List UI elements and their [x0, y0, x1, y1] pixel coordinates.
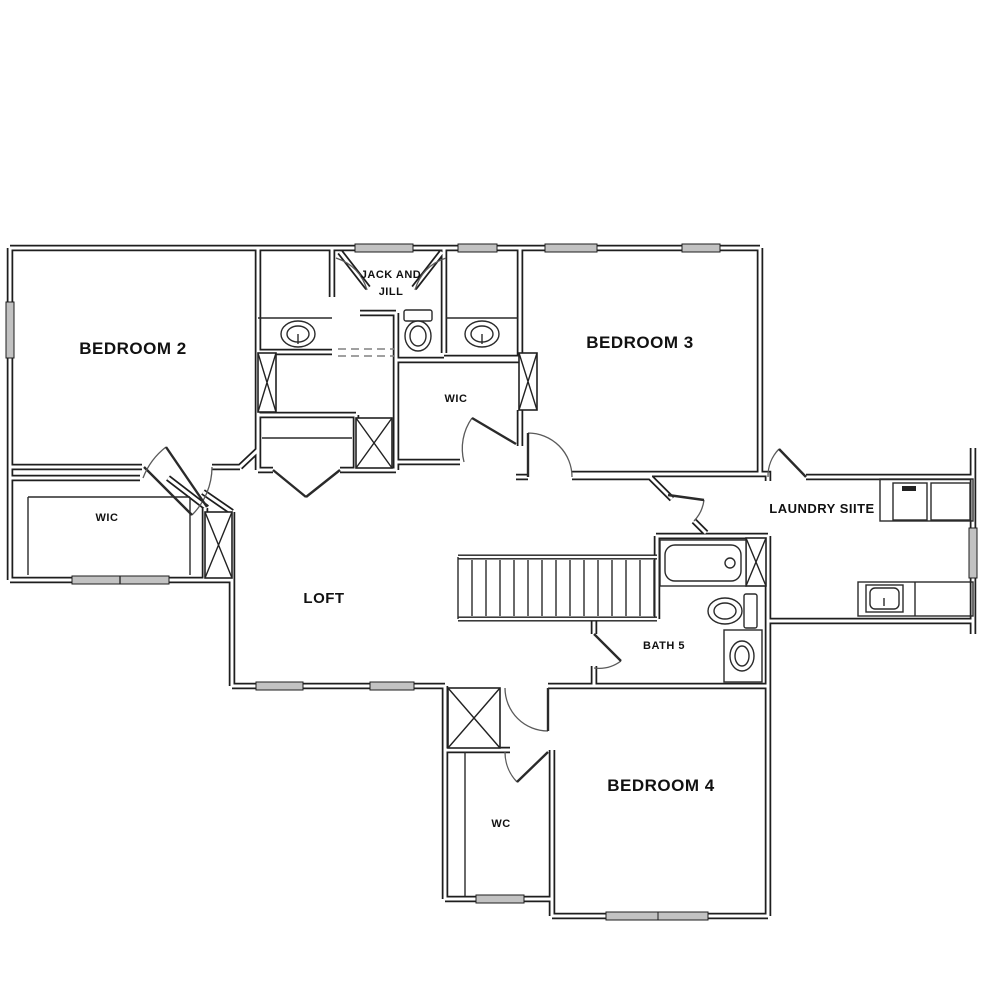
floor-plan-image: BEDROOM 2 JACK AND JILL BEDROOM 3 WIC WI…	[0, 0, 1000, 1000]
label-laundry: LAUNDRY SIITE	[769, 501, 874, 516]
label-jack-and-jill-line1: JACK AND	[361, 269, 421, 281]
door-hall-diagonal	[668, 495, 704, 521]
staircase	[458, 557, 657, 619]
bathtub	[660, 540, 746, 586]
door-wic-center	[462, 418, 516, 462]
toilet-bath5	[708, 594, 757, 628]
label-wic-center: WIC	[445, 393, 468, 405]
xhatch-box	[356, 418, 392, 468]
door-bedroom4	[505, 688, 548, 731]
door-bath5	[594, 634, 621, 668]
label-loft: LOFT	[303, 590, 344, 607]
window	[355, 244, 413, 252]
window	[658, 912, 708, 920]
vanity-sink-bath5	[724, 630, 762, 682]
xhatch-box	[519, 353, 537, 410]
vanity-sink-right	[446, 318, 518, 347]
xhatch-box	[448, 688, 500, 748]
window	[606, 912, 658, 920]
label-bedroom3: BEDROOM 3	[586, 333, 693, 352]
laundry-sink-counter	[858, 582, 973, 616]
toilet-jack-and-jill	[404, 310, 432, 351]
window	[6, 302, 14, 358]
window	[682, 244, 720, 252]
door-wc	[505, 752, 548, 782]
xhatch-box	[205, 512, 232, 578]
window	[545, 244, 597, 252]
washer-dryer	[880, 479, 973, 521]
door-bedroom3	[528, 433, 572, 477]
label-wic-left: WIC	[96, 512, 119, 524]
floor-plan-svg: BEDROOM 2 JACK AND JILL BEDROOM 3 WIC WI…	[0, 0, 1000, 1000]
window	[969, 528, 977, 578]
window	[476, 895, 524, 903]
wic-left-shelves	[28, 497, 190, 575]
window	[370, 682, 414, 690]
stair-treads	[472, 560, 654, 616]
window	[458, 244, 497, 252]
label-bedroom2: BEDROOM 2	[79, 339, 186, 358]
pocket-door-dashes	[338, 349, 394, 356]
closet-double-doors	[273, 470, 340, 497]
window	[256, 682, 303, 690]
label-jack-and-jill-line2: JILL	[379, 286, 404, 298]
label-wc: WC	[491, 818, 510, 830]
door-laundry	[768, 449, 806, 477]
label-bath5: BATH 5	[643, 640, 685, 652]
label-bedroom4: BEDROOM 4	[607, 776, 715, 795]
vanity-sink-left	[258, 318, 332, 347]
xhatch-box	[746, 538, 766, 586]
xhatch-box	[258, 353, 276, 412]
